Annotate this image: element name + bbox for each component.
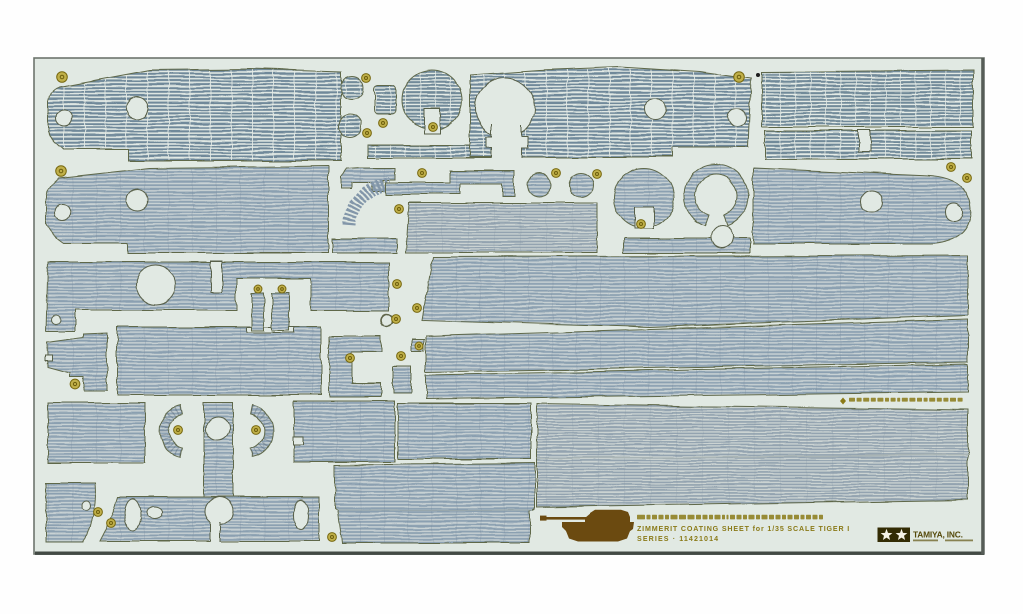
svg-text:ZIMMERIT COATING SHEET for 1/3: ZIMMERIT COATING SHEET for 1/35 SCALE TI… <box>637 525 850 533</box>
svg-text:TAMIYA, INC.: TAMIYA, INC. <box>913 530 963 540</box>
svg-text:SERIES · 11421014: SERIES · 11421014 <box>637 535 719 543</box>
